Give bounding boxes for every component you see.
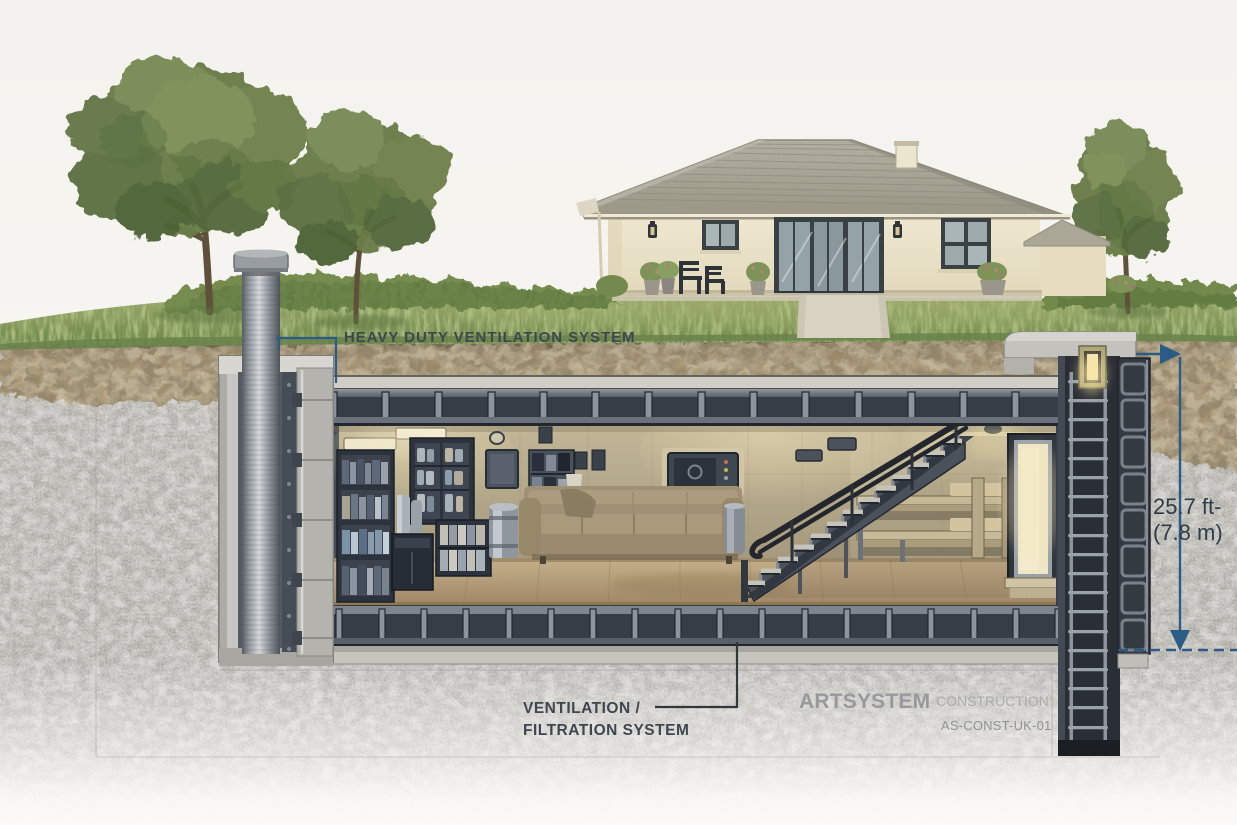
svg-text:(7.8 m): (7.8 m): [1153, 520, 1223, 545]
svg-text:25.7 ft-: 25.7 ft-: [1153, 494, 1221, 519]
svg-text:VENTILATION /: VENTILATION /: [523, 700, 640, 717]
svg-text:CONSTRUCTION: CONSTRUCTION: [936, 693, 1049, 709]
svg-text:AS-CONST-UK-01: AS-CONST-UK-01: [941, 718, 1051, 733]
svg-text:ARTSYSTEM: ARTSYSTEM: [799, 690, 930, 713]
svg-text:FILTRATION SYSTEM: FILTRATION SYSTEM: [523, 722, 689, 739]
svg-text:HEAVY DUTY VENTILATION SYSTEM: HEAVY DUTY VENTILATION SYSTEM: [344, 329, 635, 346]
